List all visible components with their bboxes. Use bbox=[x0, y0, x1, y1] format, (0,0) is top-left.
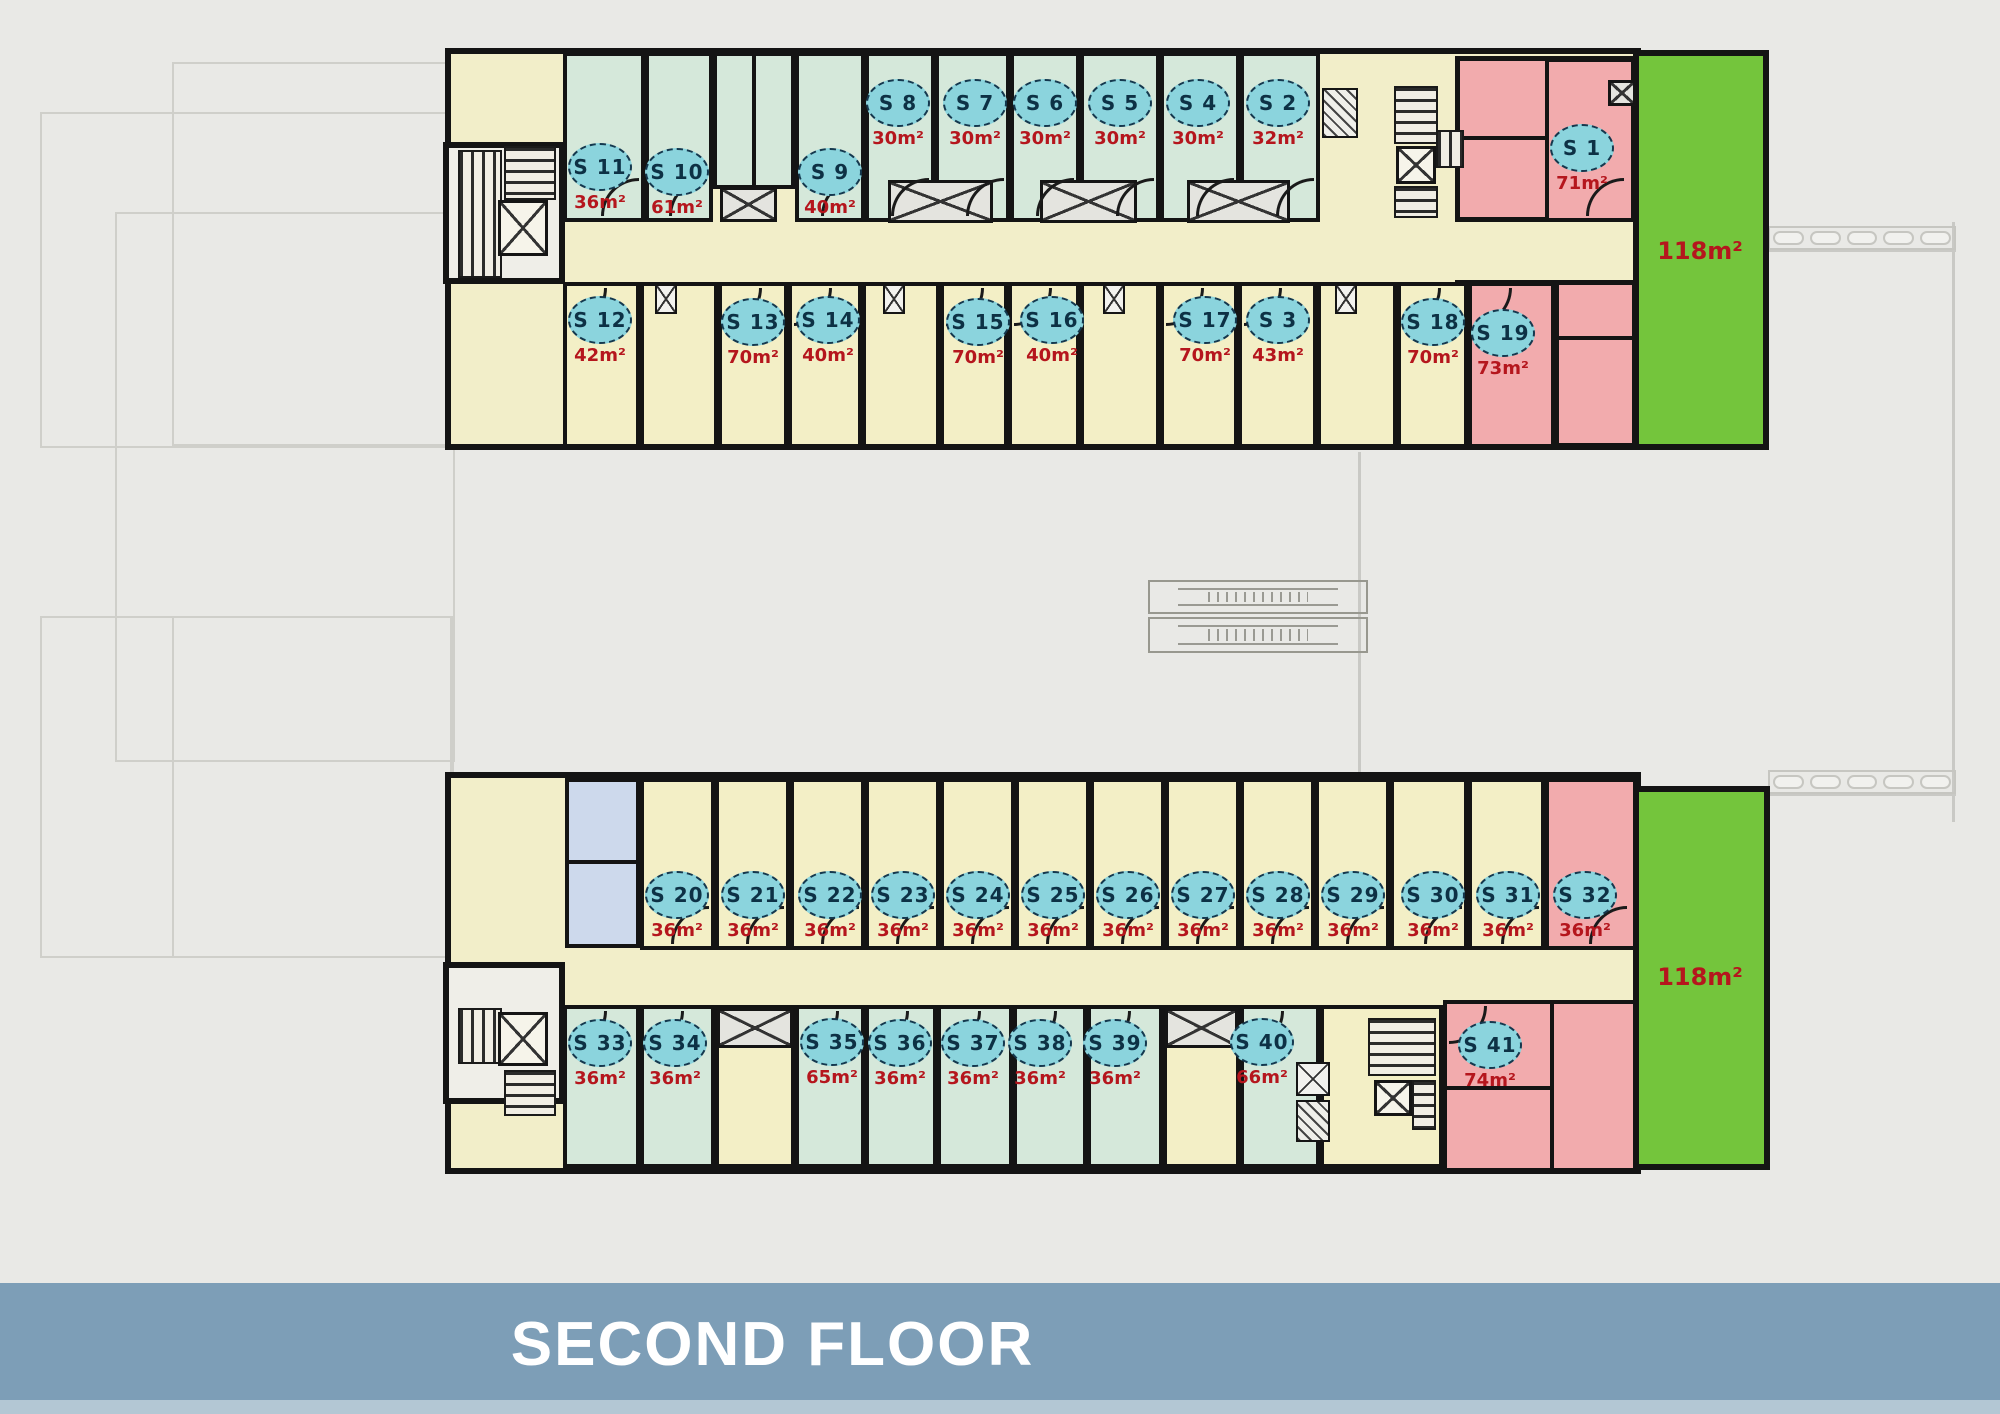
unit-tag: S 20 bbox=[645, 871, 709, 919]
unit-area: 74m² bbox=[1445, 1070, 1535, 1094]
unit-area: 30m² bbox=[1075, 128, 1165, 152]
unit-tag: S 18 bbox=[1401, 298, 1465, 346]
elevator bbox=[1374, 1080, 1412, 1116]
unit-tag: S 2 bbox=[1246, 79, 1310, 127]
staircase bbox=[504, 1070, 556, 1116]
duct bbox=[1296, 1100, 1330, 1142]
unit-tag: S 29 bbox=[1321, 871, 1385, 919]
escalator bbox=[1148, 580, 1368, 614]
unit-tag: S 19 bbox=[1471, 309, 1535, 357]
slat bbox=[1883, 775, 1914, 789]
staircase bbox=[458, 1008, 502, 1064]
duct bbox=[1322, 88, 1358, 138]
unit-tag: S 40 bbox=[1230, 1018, 1294, 1066]
staircase bbox=[1394, 86, 1438, 144]
staircase bbox=[1412, 1080, 1436, 1130]
shaft bbox=[717, 1008, 793, 1048]
unit-tag: S 33 bbox=[568, 1019, 632, 1067]
ghost-line bbox=[1768, 794, 1956, 796]
unit-area: 40m² bbox=[783, 345, 873, 369]
interior-wall bbox=[1555, 336, 1637, 340]
unit-tag: S 24 bbox=[946, 871, 1010, 919]
unit-area: 61m² bbox=[632, 197, 722, 221]
unit-tag: S 21 bbox=[721, 871, 785, 919]
interior-wall bbox=[752, 52, 756, 189]
interior-wall bbox=[1550, 1004, 1554, 1170]
slat bbox=[1883, 231, 1914, 245]
unit-area: 40m² bbox=[785, 197, 875, 221]
floor-plan: 118m²118m²S 1136m²S 1061m²S 940m²S 830m²… bbox=[0, 0, 2000, 1414]
unit-tag: S 1 bbox=[1550, 124, 1614, 172]
unit-tag: S 15 bbox=[946, 298, 1010, 346]
unit-tag: S 9 bbox=[798, 148, 862, 196]
unit-tag: S 12 bbox=[568, 296, 632, 344]
staircase bbox=[1436, 130, 1464, 168]
small-shaft bbox=[1103, 284, 1125, 314]
terrace-slats bbox=[1768, 770, 1956, 794]
unit-tag: S 3 bbox=[1246, 296, 1310, 344]
ghost-line bbox=[1952, 222, 1955, 822]
unit-tag: S 23 bbox=[871, 871, 935, 919]
unit-tag: S 13 bbox=[721, 298, 785, 346]
slat bbox=[1847, 231, 1878, 245]
slat bbox=[1773, 231, 1804, 245]
slat bbox=[1847, 775, 1878, 789]
elevator bbox=[1396, 146, 1436, 184]
slat bbox=[1810, 775, 1841, 789]
unit-tag: S 17 bbox=[1173, 296, 1237, 344]
unit-tag: S 30 bbox=[1401, 871, 1465, 919]
unit-tag: S 16 bbox=[1020, 296, 1084, 344]
staircase bbox=[1368, 1018, 1436, 1076]
staircase bbox=[1394, 186, 1438, 218]
unit-tag: S 26 bbox=[1096, 871, 1160, 919]
unit-tag: S 6 bbox=[1013, 79, 1077, 127]
interior-wall bbox=[567, 860, 640, 864]
interior-wall bbox=[1555, 284, 1559, 448]
floor-title-banner: SECOND FLOOR bbox=[0, 1283, 2000, 1400]
unit-area: 71m² bbox=[1537, 173, 1627, 197]
unit-tag: S 41 bbox=[1458, 1021, 1522, 1069]
shaft bbox=[1165, 1008, 1238, 1048]
ghost-line bbox=[1768, 250, 1956, 252]
small-shaft bbox=[655, 284, 677, 314]
terrace-area-label: 118m² bbox=[1630, 963, 1770, 993]
unit-area: 36m² bbox=[630, 1068, 720, 1092]
shaft bbox=[720, 187, 777, 222]
unit-tag: S 35 bbox=[800, 1018, 864, 1066]
unit-tag: S 31 bbox=[1476, 871, 1540, 919]
unit-area: 36m² bbox=[1540, 920, 1630, 944]
terrace-slats bbox=[1768, 226, 1956, 250]
unit-tag: S 8 bbox=[866, 79, 930, 127]
shaft bbox=[1608, 80, 1636, 106]
terrace-area-label: 118m² bbox=[1630, 237, 1770, 267]
escalator bbox=[1148, 617, 1368, 653]
unit-tag: S 11 bbox=[568, 143, 632, 191]
unit-tag: S 5 bbox=[1088, 79, 1152, 127]
slat bbox=[1773, 775, 1804, 789]
unit-area: 32m² bbox=[1233, 128, 1323, 152]
unit-tag: S 32 bbox=[1553, 871, 1617, 919]
unit-tag: S 39 bbox=[1083, 1019, 1147, 1067]
unit-tag: S 38 bbox=[1008, 1019, 1072, 1067]
unit-tag: S 28 bbox=[1246, 871, 1310, 919]
unit-area: 73m² bbox=[1458, 358, 1548, 382]
unit-tag: S 10 bbox=[645, 148, 709, 196]
unit-area: 30m² bbox=[1153, 128, 1243, 152]
elevator bbox=[498, 200, 548, 256]
unit-area: 66m² bbox=[1217, 1067, 1307, 1091]
unit-tag: S 27 bbox=[1171, 871, 1235, 919]
utility-zone bbox=[1317, 282, 1397, 448]
unit-area: 36m² bbox=[1308, 920, 1398, 944]
ghost-outline bbox=[172, 616, 454, 958]
elevator bbox=[498, 1012, 548, 1066]
unit-tag: S 4 bbox=[1166, 79, 1230, 127]
banner-bottom-strip bbox=[0, 1400, 2000, 1414]
unit-tag: S 37 bbox=[941, 1019, 1005, 1067]
small-shaft bbox=[883, 284, 905, 314]
unit-tag: S 34 bbox=[643, 1019, 707, 1067]
unit-area: 36m² bbox=[1070, 1068, 1160, 1092]
interior-wall bbox=[1459, 136, 1545, 140]
unit-area: 43m² bbox=[1233, 345, 1323, 369]
unit-tag: S 25 bbox=[1021, 871, 1085, 919]
small-shaft bbox=[1335, 284, 1357, 314]
slat bbox=[1810, 231, 1841, 245]
unit-area: 40m² bbox=[1007, 345, 1097, 369]
staircase bbox=[504, 146, 556, 200]
staircase bbox=[458, 150, 502, 278]
unit-tag: S 7 bbox=[943, 79, 1007, 127]
unit-tag: S 14 bbox=[796, 296, 860, 344]
slat bbox=[1920, 231, 1951, 245]
unit-area: 42m² bbox=[555, 345, 645, 369]
slat bbox=[1920, 775, 1951, 789]
unit-tag: S 22 bbox=[798, 871, 862, 919]
floor-title: SECOND FLOOR bbox=[0, 1309, 1545, 1380]
unit-tag: S 36 bbox=[868, 1019, 932, 1067]
utility-zone bbox=[640, 282, 718, 448]
